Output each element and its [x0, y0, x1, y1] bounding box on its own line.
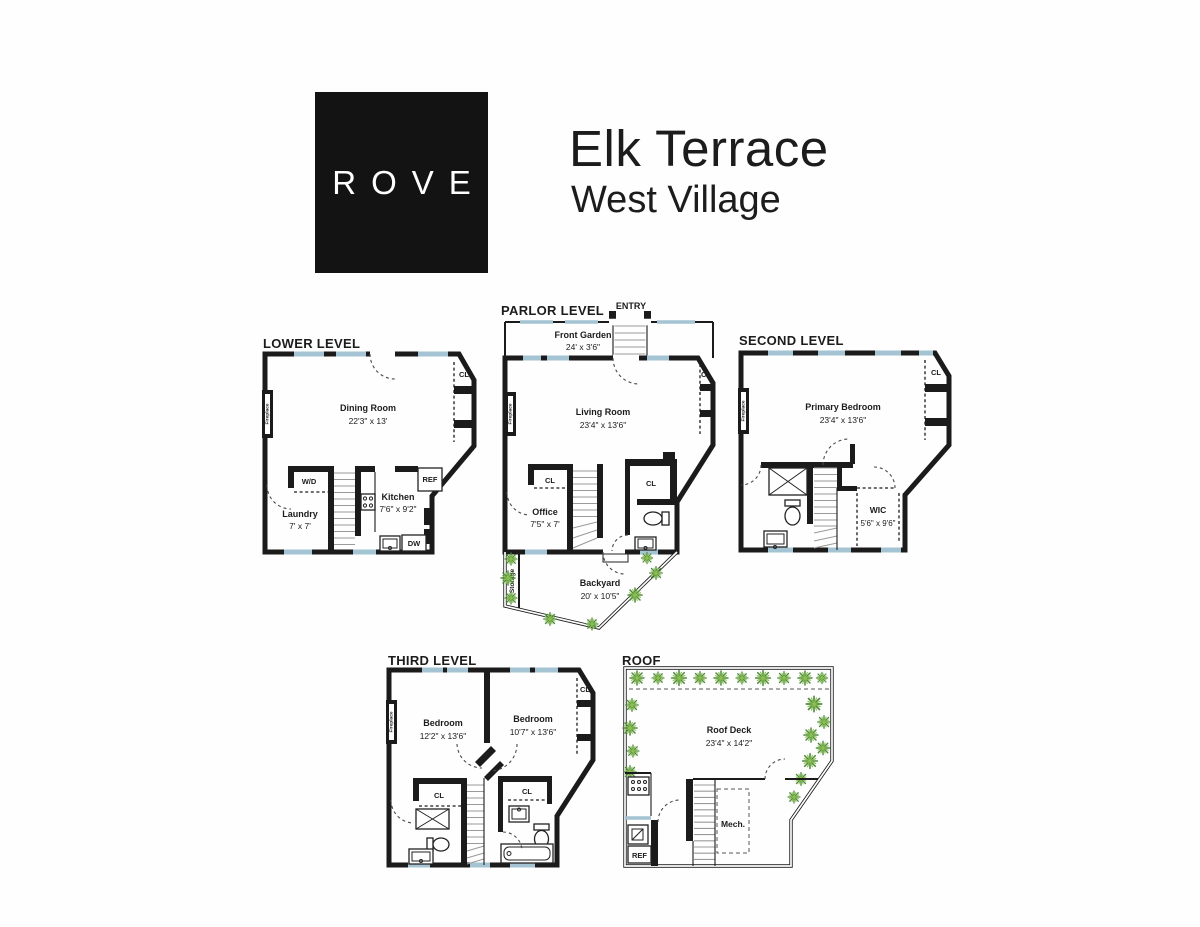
- laundry-label: Laundry: [282, 509, 318, 519]
- backyard-dims: 20' x 10'5": [581, 591, 620, 601]
- closet-label: CL: [580, 685, 590, 694]
- living-room-label: Living Room: [576, 407, 631, 417]
- stairs: [573, 471, 597, 548]
- lower-level-title: LOWER LEVEL: [263, 336, 360, 351]
- door-arc: [370, 354, 395, 379]
- bedroom-left-dims: 12'2" x 13'6": [420, 731, 467, 741]
- floorplan-roof: ROOF Roof: [617, 648, 852, 880]
- mechanical-label: Mech.: [721, 819, 745, 829]
- refrigerator-label: REF: [423, 475, 438, 484]
- toilet-icon: [644, 512, 669, 525]
- shower-icon: [769, 468, 807, 495]
- office-label: Office: [532, 507, 558, 517]
- wall: [597, 464, 603, 538]
- laundry-dims: 7' x 7': [289, 521, 311, 531]
- door-arc: [613, 358, 639, 384]
- left-bathroom: [391, 800, 449, 864]
- mechanical-room: Mech.: [717, 789, 749, 853]
- front-garden-label: Front Garden: [554, 330, 611, 340]
- floorplan-lower-level: LOWER LEVEL Fireplace CL Dining Room 22'…: [258, 332, 482, 566]
- door-arc: [823, 439, 849, 465]
- fireplace: Fireplace: [386, 700, 397, 744]
- closet-label: CL: [522, 787, 532, 796]
- stairs: [467, 778, 484, 865]
- wic-dims: 5'6" x 9'6": [861, 519, 896, 528]
- dining-room-dims: 22'3" x 13': [349, 416, 388, 426]
- grill-icon: [628, 777, 649, 795]
- angled-wall: [475, 746, 496, 767]
- parlor-level-title: PARLOR LEVEL: [501, 303, 604, 318]
- fireplace-label: Fireplace: [265, 403, 271, 424]
- fireplace-label: Fireplace: [741, 400, 747, 421]
- sink-icon: [509, 806, 529, 822]
- stairs: [693, 779, 715, 866]
- washer-dryer-label: W/D: [302, 477, 317, 486]
- third-walls: [389, 670, 593, 865]
- stairs: [334, 473, 355, 545]
- bedroom-divider-wall: [484, 670, 490, 743]
- entry-stairs: [609, 311, 651, 357]
- stove-icon: [361, 494, 375, 510]
- door-arc: [741, 465, 761, 485]
- refrigerator: REF: [628, 846, 651, 863]
- walk-in-closet: WIC 5'6" x 9'6": [857, 467, 899, 546]
- second-walls: [741, 353, 949, 550]
- backyard: Storage Backyard 20' x 10'5": [501, 552, 677, 630]
- roof-deck-dims: 23'4" x 14'2": [706, 738, 753, 748]
- backyard-label: Backyard: [580, 578, 621, 588]
- front-garden-walls: [505, 322, 713, 358]
- front-garden-dims: 24' x 3'6": [566, 342, 600, 352]
- fireplace: Fireplace: [505, 392, 516, 436]
- floorplan-third-level: THIRD LEVEL Fireplace CL Bedroom 12'2" x…: [381, 648, 603, 880]
- closet-label: CL: [931, 368, 941, 377]
- closet-label: CL: [459, 370, 469, 379]
- refrigerator: REF: [418, 468, 442, 491]
- roof-title: ROOF: [622, 653, 661, 668]
- floorplan-second-level: SECOND LEVEL Fireplace CL Primary Bedroo…: [733, 328, 965, 564]
- kitchen-dims: 7'6" x 9'2": [379, 504, 416, 514]
- door-arc: [507, 492, 530, 515]
- sink-icon: [380, 536, 400, 551]
- dining-room-label: Dining Room: [340, 403, 396, 413]
- living-room-dims: 23'4" x 13'6": [580, 420, 627, 430]
- refrigerator-label: REF: [632, 851, 647, 860]
- wall: [461, 778, 467, 865]
- fireplace-label: Fireplace: [508, 403, 514, 424]
- logo-text: ROVE: [332, 164, 486, 202]
- wic-label: WIC: [870, 505, 887, 515]
- icemaker-icon: [628, 825, 648, 844]
- dishwasher-label: DW: [408, 539, 421, 548]
- fireplace-label: Fireplace: [389, 711, 395, 732]
- rove-logo: ROVE: [315, 92, 488, 273]
- third-level-title: THIRD LEVEL: [388, 653, 477, 668]
- bathtub-icon: [501, 844, 553, 863]
- right-bathroom: [501, 806, 553, 863]
- closet-label: CL: [545, 476, 555, 485]
- closet-label: CL: [701, 370, 711, 379]
- property-subtitle: West Village: [571, 181, 829, 221]
- fireplace: Fireplace: [738, 388, 749, 434]
- bedroom-right-label: Bedroom: [513, 714, 553, 724]
- primary-bedroom-label: Primary Bedroom: [805, 402, 881, 412]
- shower-icon: [416, 809, 449, 829]
- sink-icon: [635, 537, 656, 550]
- bathroom: CL: [612, 452, 677, 551]
- sink-icon: [764, 531, 787, 549]
- plants: [623, 671, 830, 803]
- sink-icon: [409, 849, 433, 864]
- floorplan-page: ROVE Elk Terrace West Village LOWER LEVE…: [0, 0, 1200, 927]
- office-dims: 7'5" x 7': [530, 519, 560, 529]
- header: Elk Terrace West Village: [569, 122, 829, 220]
- closet-label: CL: [646, 479, 656, 488]
- roof-deck-label: Roof Deck: [707, 725, 753, 735]
- door-arc: [267, 485, 291, 509]
- bedroom-left-label: Bedroom: [423, 718, 463, 728]
- property-title: Elk Terrace: [569, 122, 829, 176]
- second-level-title: SECOND LEVEL: [739, 333, 844, 348]
- floorplan-parlor-level: PARLOR LEVEL ENTRY Front Garden 24' x 3'…: [495, 296, 730, 638]
- entry-label: ENTRY: [616, 301, 646, 311]
- office-closet: CL: [528, 464, 570, 488]
- primary-bedroom-dims: 23'4" x 13'6": [820, 415, 867, 425]
- door-arc: [765, 759, 785, 779]
- door-arc: [658, 800, 680, 822]
- bedroom-right-dims: 10'7" x 13'6": [510, 727, 557, 737]
- closet-label: CL: [434, 791, 444, 800]
- kitchen-label: Kitchen: [381, 492, 414, 502]
- toilet-icon: [785, 500, 800, 525]
- fireplace: Fireplace: [262, 390, 273, 438]
- stairs: [814, 468, 837, 550]
- dishwasher: DW: [402, 535, 426, 551]
- wall: [567, 464, 573, 552]
- left-closet: CL: [413, 778, 465, 806]
